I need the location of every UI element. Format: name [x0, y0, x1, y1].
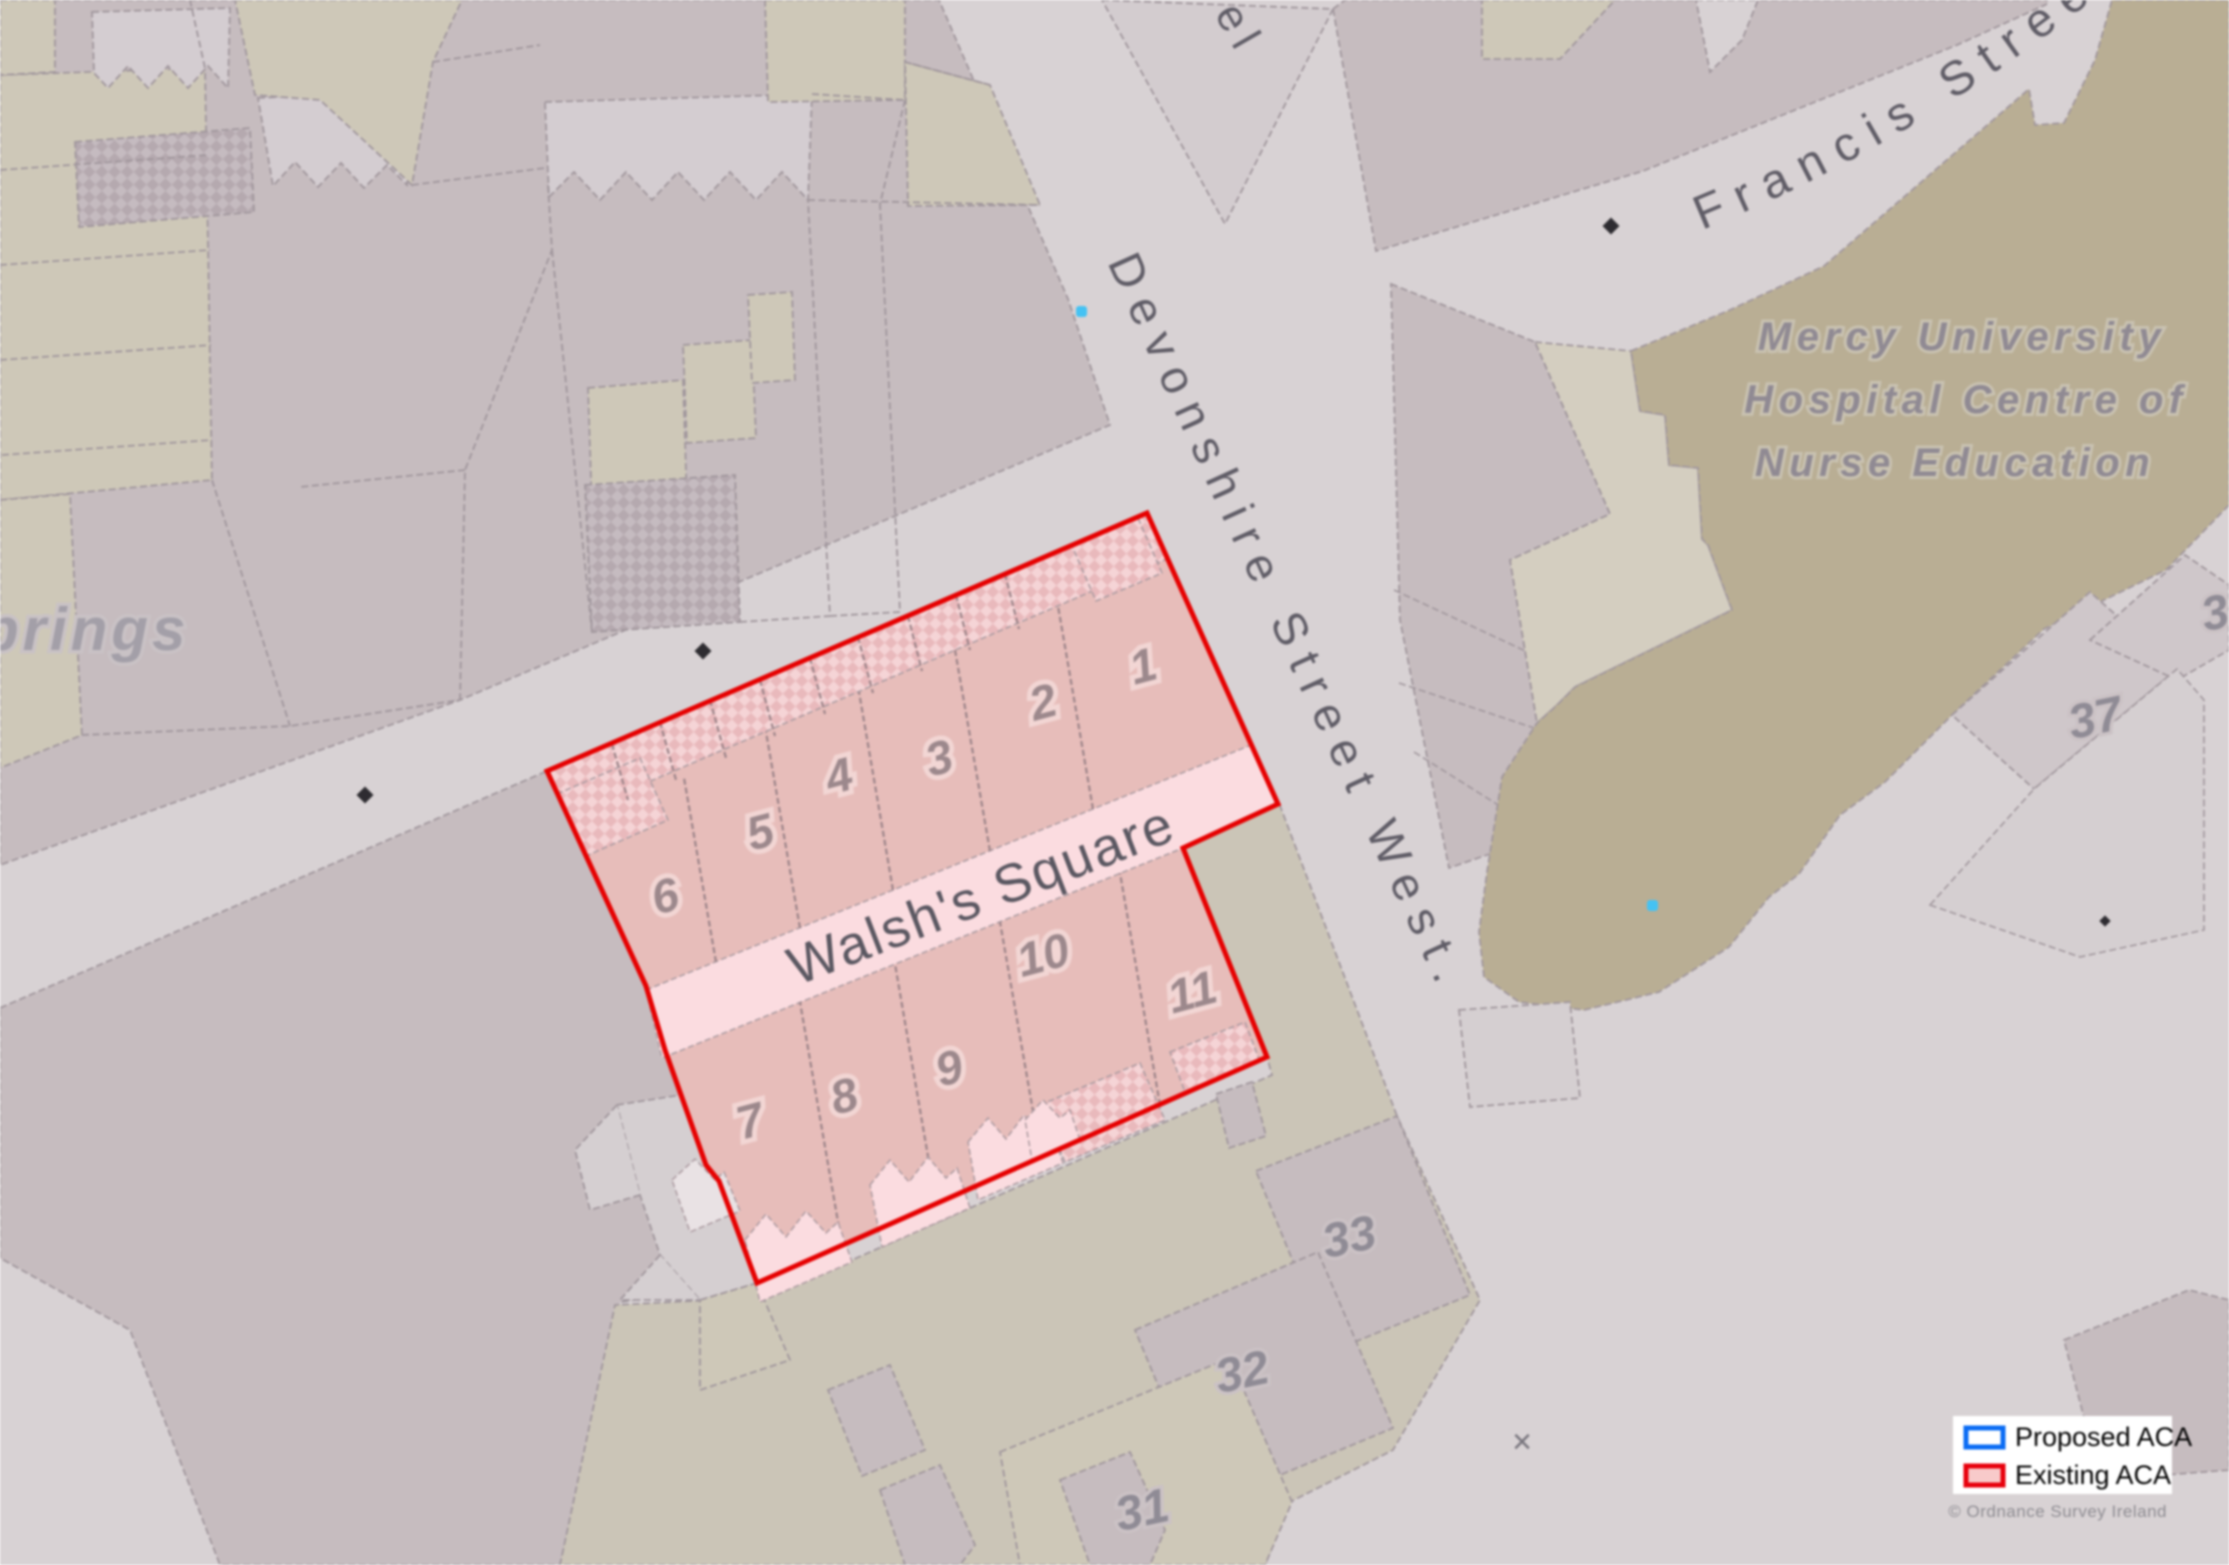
- svg-text:33: 33: [1317, 1206, 1381, 1269]
- svg-text:Mercy University: Mercy University: [1758, 315, 2166, 359]
- svg-text:Hospital Centre of: Hospital Centre of: [1744, 378, 2187, 422]
- svg-text:Existing ACA: Existing ACA: [2015, 1460, 2171, 1490]
- svg-text:Springs: Springs: [0, 596, 189, 663]
- svg-text:×: ×: [1512, 1423, 1532, 1461]
- svg-text:32: 32: [1210, 1341, 1274, 1404]
- svg-text:© Ordnance Survey Ireland: © Ordnance Survey Ireland: [1948, 1502, 2167, 1521]
- svg-text:31: 31: [1110, 1479, 1173, 1542]
- svg-text:Proposed ACA: Proposed ACA: [2015, 1422, 2192, 1452]
- svg-text:Nurse Education: Nurse Education: [1755, 441, 2155, 485]
